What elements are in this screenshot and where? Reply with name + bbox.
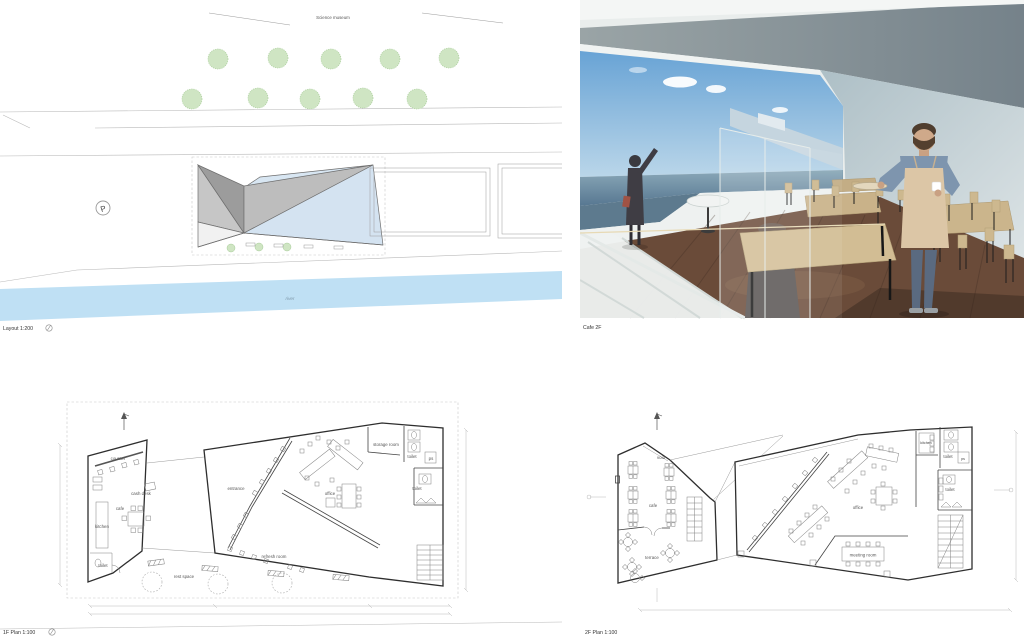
room-label-meeting-room: meeting room (850, 553, 877, 558)
presentation-board: Science museum P (0, 0, 1024, 644)
room-label-refresh-room: refresh room (262, 554, 287, 559)
north-indicator-icon (49, 629, 55, 635)
room-label-storage: storage room (373, 442, 399, 447)
room-label-kitchen-2f: kitchen (920, 441, 931, 445)
building-forecourt (227, 243, 343, 252)
room-label-terrace: terrace (645, 555, 659, 560)
building-roof-plan (198, 165, 383, 247)
floor-plan-1f: counter cash desk cafe kitchen toilet (0, 390, 562, 644)
room-label-kitchen-1f: kitchen (95, 524, 109, 529)
plan-2f-caption: 2F Plan 1:100 (585, 630, 617, 636)
room-label-toilet-1f-a: toilet (98, 563, 108, 568)
room-label-rest-space: rest space (174, 574, 195, 579)
parking-icon: P (96, 201, 110, 215)
room-label-toilet-1f-c: toilet (412, 486, 422, 491)
wing-west-1f: counter cash desk cafe kitchen toilet (88, 440, 156, 582)
room-label-cafe-2f: cafe (649, 503, 658, 508)
room-label-office-2f: office (853, 505, 864, 510)
svg-text:1F Plan 1:100: 1F Plan 1:100 (3, 630, 35, 636)
trees (182, 48, 459, 109)
room-label-ps-2f: ps (961, 457, 965, 461)
room-label-entrance: entrance (227, 486, 245, 491)
plan-1f-caption: 1F Plan 1:100 (3, 629, 55, 636)
room-label-cash-desk: cash desk (131, 491, 152, 496)
river (0, 271, 562, 321)
cafe-render: Cafe 2F (580, 0, 1024, 334)
floor-plan-2f: void cafe terrace void (562, 390, 1024, 644)
room-label-cafe-1f: cafe (116, 506, 125, 511)
site-leader-lines (209, 13, 503, 25)
wing-west-2f: void cafe terrace (616, 443, 718, 583)
render-caption: Cafe 2F (583, 325, 601, 331)
north-arrow-icon (654, 412, 662, 430)
room-label-counter: counter (111, 456, 126, 461)
neighbor-buildings (370, 164, 562, 238)
room-label-void-a: void (657, 455, 666, 460)
room-label-ps-1f: ps (429, 456, 434, 461)
wing-east-2f: office meeting room kitchen toilet ps to… (735, 427, 972, 580)
site-plan: Science museum P (0, 0, 562, 345)
room-label-toilet-2f-b: toilet (945, 487, 955, 492)
svg-text:P: P (99, 204, 107, 214)
room-label-toilet-2f-a: toilet (943, 454, 953, 459)
north-indicator-icon (46, 325, 52, 331)
north-arrow-icon (121, 412, 129, 430)
svg-text:Layout 1:200: Layout 1:200 (3, 326, 33, 332)
room-label-office-1f: office (325, 491, 336, 496)
site-plan-caption: Layout 1:200 (3, 325, 52, 332)
museum-label: Science museum (316, 15, 350, 20)
room-label-toilet-1f-b: toilet (407, 454, 417, 459)
wing-east-1f: entrance office storage room toilet ps t… (204, 423, 443, 586)
river-label: river (286, 296, 295, 301)
glass-partition (720, 128, 842, 318)
